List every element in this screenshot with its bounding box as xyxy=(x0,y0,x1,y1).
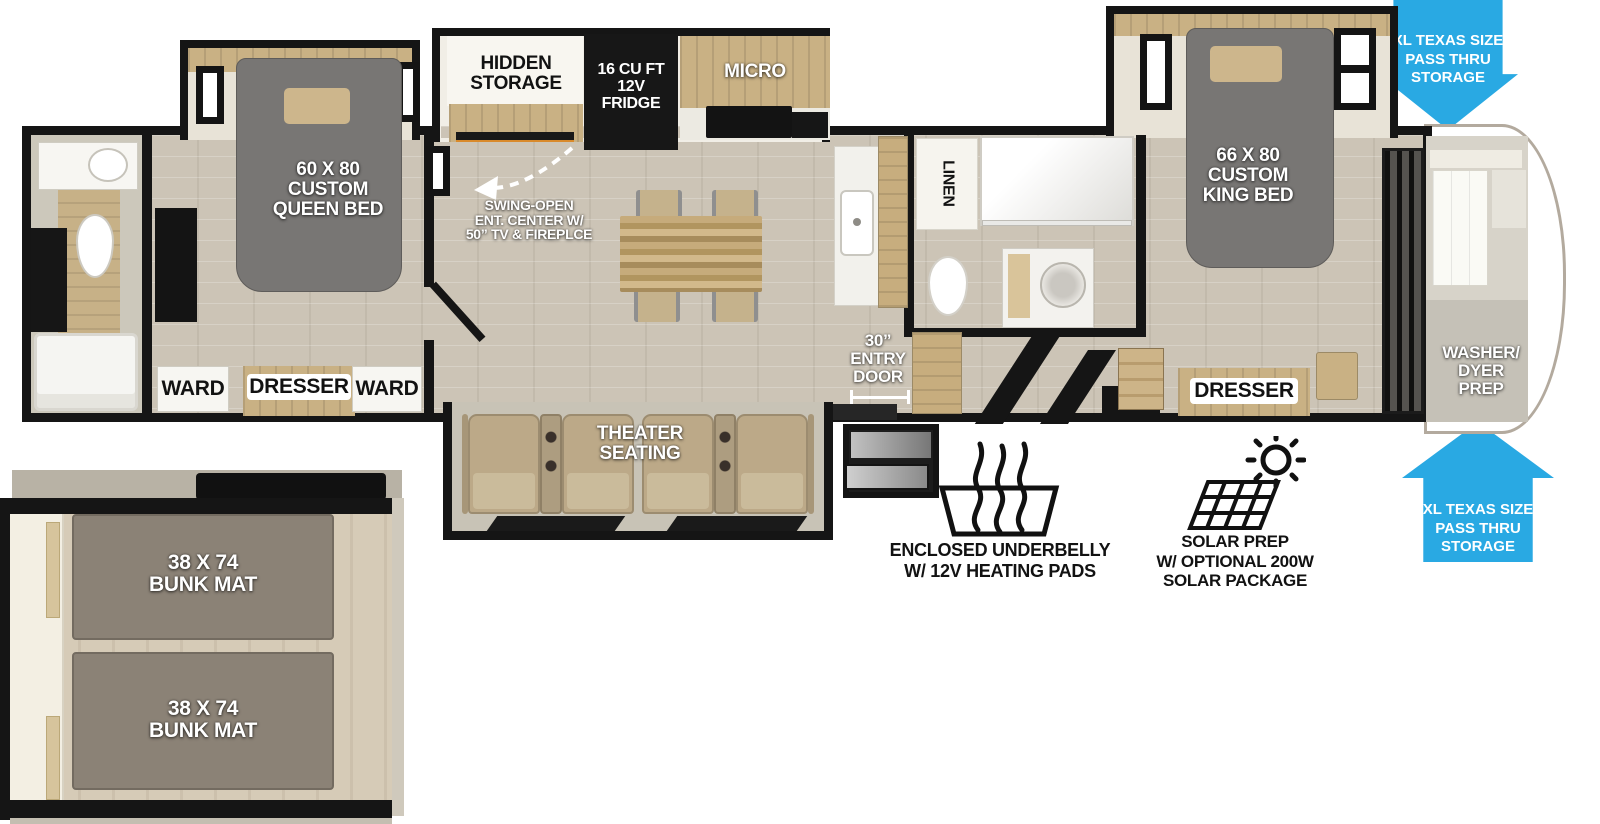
seat-cushion xyxy=(647,473,709,509)
entry-step-1 xyxy=(851,432,931,458)
kitchen-sink-faucet xyxy=(853,218,861,226)
theater-mat-left xyxy=(487,516,626,531)
pass-thru-top-label: XL TEXAS SIZE PASS THRU STORAGE xyxy=(1393,32,1504,87)
underbelly-label: ENCLOSED UNDERBELLY W/ 12V HEATING PADS xyxy=(860,540,1140,581)
entry-step-2 xyxy=(845,464,929,490)
seat-cushion xyxy=(567,473,629,509)
midbath-shower-glass xyxy=(982,220,1132,226)
theater-console-left xyxy=(540,414,562,514)
theater-armrest-right xyxy=(808,414,814,514)
midbath-shower xyxy=(980,136,1134,226)
entry-steps xyxy=(843,424,939,498)
front-dresser-label: DRESSER xyxy=(247,374,351,400)
floorplan-canvas: WASHER/ DYER PREP 60 X 80 CUSTOM QUEEN B… xyxy=(0,0,1600,824)
entry-door-bracket-bar xyxy=(853,396,907,399)
kitchen-tall-cabinet xyxy=(878,136,908,308)
seat-cushion xyxy=(741,473,803,509)
bunk-inset-wall-left xyxy=(0,498,10,820)
dining-chair-bottom-right xyxy=(712,288,758,322)
stair-wood-steps xyxy=(1118,348,1164,410)
bunk-wardrobe-panel-bottom xyxy=(46,716,60,800)
closet-shelf-tall xyxy=(1432,170,1488,286)
front-ward-left-label: WARD xyxy=(156,378,230,400)
cooktop xyxy=(706,106,792,138)
closet-shelf-top xyxy=(1430,150,1522,168)
entry-door-opening xyxy=(833,404,897,420)
theater-seating-label: THEATER SEATING xyxy=(560,424,720,464)
bunk-room-right-face xyxy=(392,498,404,816)
closet-shelf-side xyxy=(1492,170,1526,228)
fridge-label: 16 CU FT 12V FRIDGE xyxy=(586,62,676,112)
king-bed-label: 66 X 80 CUSTOM KING BED xyxy=(1168,146,1328,206)
front-bath-cabinet xyxy=(31,228,67,332)
wall-bath-bedroom xyxy=(142,135,152,413)
bunk-inset-counter xyxy=(196,473,386,500)
wall-midbath-bedroom xyxy=(1136,135,1146,337)
front-bath-sink xyxy=(88,148,128,182)
solar-panel-sun-icon xyxy=(1180,436,1306,536)
bunk-inset-wall-bottom xyxy=(0,800,392,818)
rear-wardrobe xyxy=(1382,148,1424,414)
front-bath-tub xyxy=(34,333,138,411)
bunk-inset-bottom-lip xyxy=(10,818,392,824)
pass-thru-arrow-down: XL TEXAS SIZE PASS THRU STORAGE xyxy=(1378,0,1518,130)
bunk-inset-wall-top xyxy=(0,498,392,514)
rear-bench xyxy=(1316,352,1358,400)
living-window-left-wall xyxy=(426,146,450,196)
front-bedroom-tv-cabinet xyxy=(155,208,197,322)
seat-cushion xyxy=(473,473,535,509)
entry-door-bracket xyxy=(850,390,910,404)
theater-mat-right xyxy=(667,516,808,531)
heat-waves-icon xyxy=(938,436,1060,538)
dining-chair-bottom-left xyxy=(634,288,680,322)
king-window-left xyxy=(1140,34,1172,110)
linen-label: LINEN xyxy=(939,138,956,228)
dining-table xyxy=(620,216,762,292)
wall-bedroom-living-bottom xyxy=(424,340,434,413)
theater-seat-1 xyxy=(468,414,540,514)
swing-open-label: SWING-OPEN ENT. CENTER W/ 50” TV & FIREP… xyxy=(444,198,614,242)
solar-label: SOLAR PREP W/ OPTIONAL 200W SOLAR PACKAG… xyxy=(1110,532,1360,591)
dashed-curve-arrow-icon xyxy=(468,138,580,200)
king-pillow xyxy=(1210,46,1282,82)
hidden-storage-label: HIDDEN STORAGE xyxy=(446,54,586,94)
bunk-mat-top-label: 38 X 74 BUNK MAT xyxy=(113,552,293,596)
pass-thru-arrow-up: XL TEXAS SIZE PASS THRU STORAGE xyxy=(1402,422,1554,562)
pass-thru-bottom-label: XL TEXAS SIZE PASS THRU STORAGE xyxy=(1423,501,1534,556)
king-window-right xyxy=(1334,28,1376,110)
queen-bed-label: 60 X 80 CUSTOM QUEEN BED xyxy=(253,160,403,220)
queen-window-left xyxy=(196,66,224,124)
washer-dryer-prep-label: WASHER/ DYER PREP xyxy=(1428,344,1534,398)
rear-dresser-label: DRESSER xyxy=(1190,378,1298,404)
queen-pillow xyxy=(284,88,350,124)
bunk-mat-bottom-label: 38 X 74 BUNK MAT xyxy=(113,698,293,742)
midbath-vanity-door xyxy=(1008,254,1030,318)
front-ward-right-label: WARD xyxy=(350,378,424,400)
micro-label: MICRO xyxy=(690,62,820,82)
theater-seat-4 xyxy=(736,414,808,514)
midbath-basin xyxy=(1040,262,1086,308)
counter-black-end xyxy=(792,112,828,138)
bunk-wardrobe-panel-top xyxy=(46,522,60,618)
entry-door-label: 30” ENTRY DOOR xyxy=(826,332,930,386)
